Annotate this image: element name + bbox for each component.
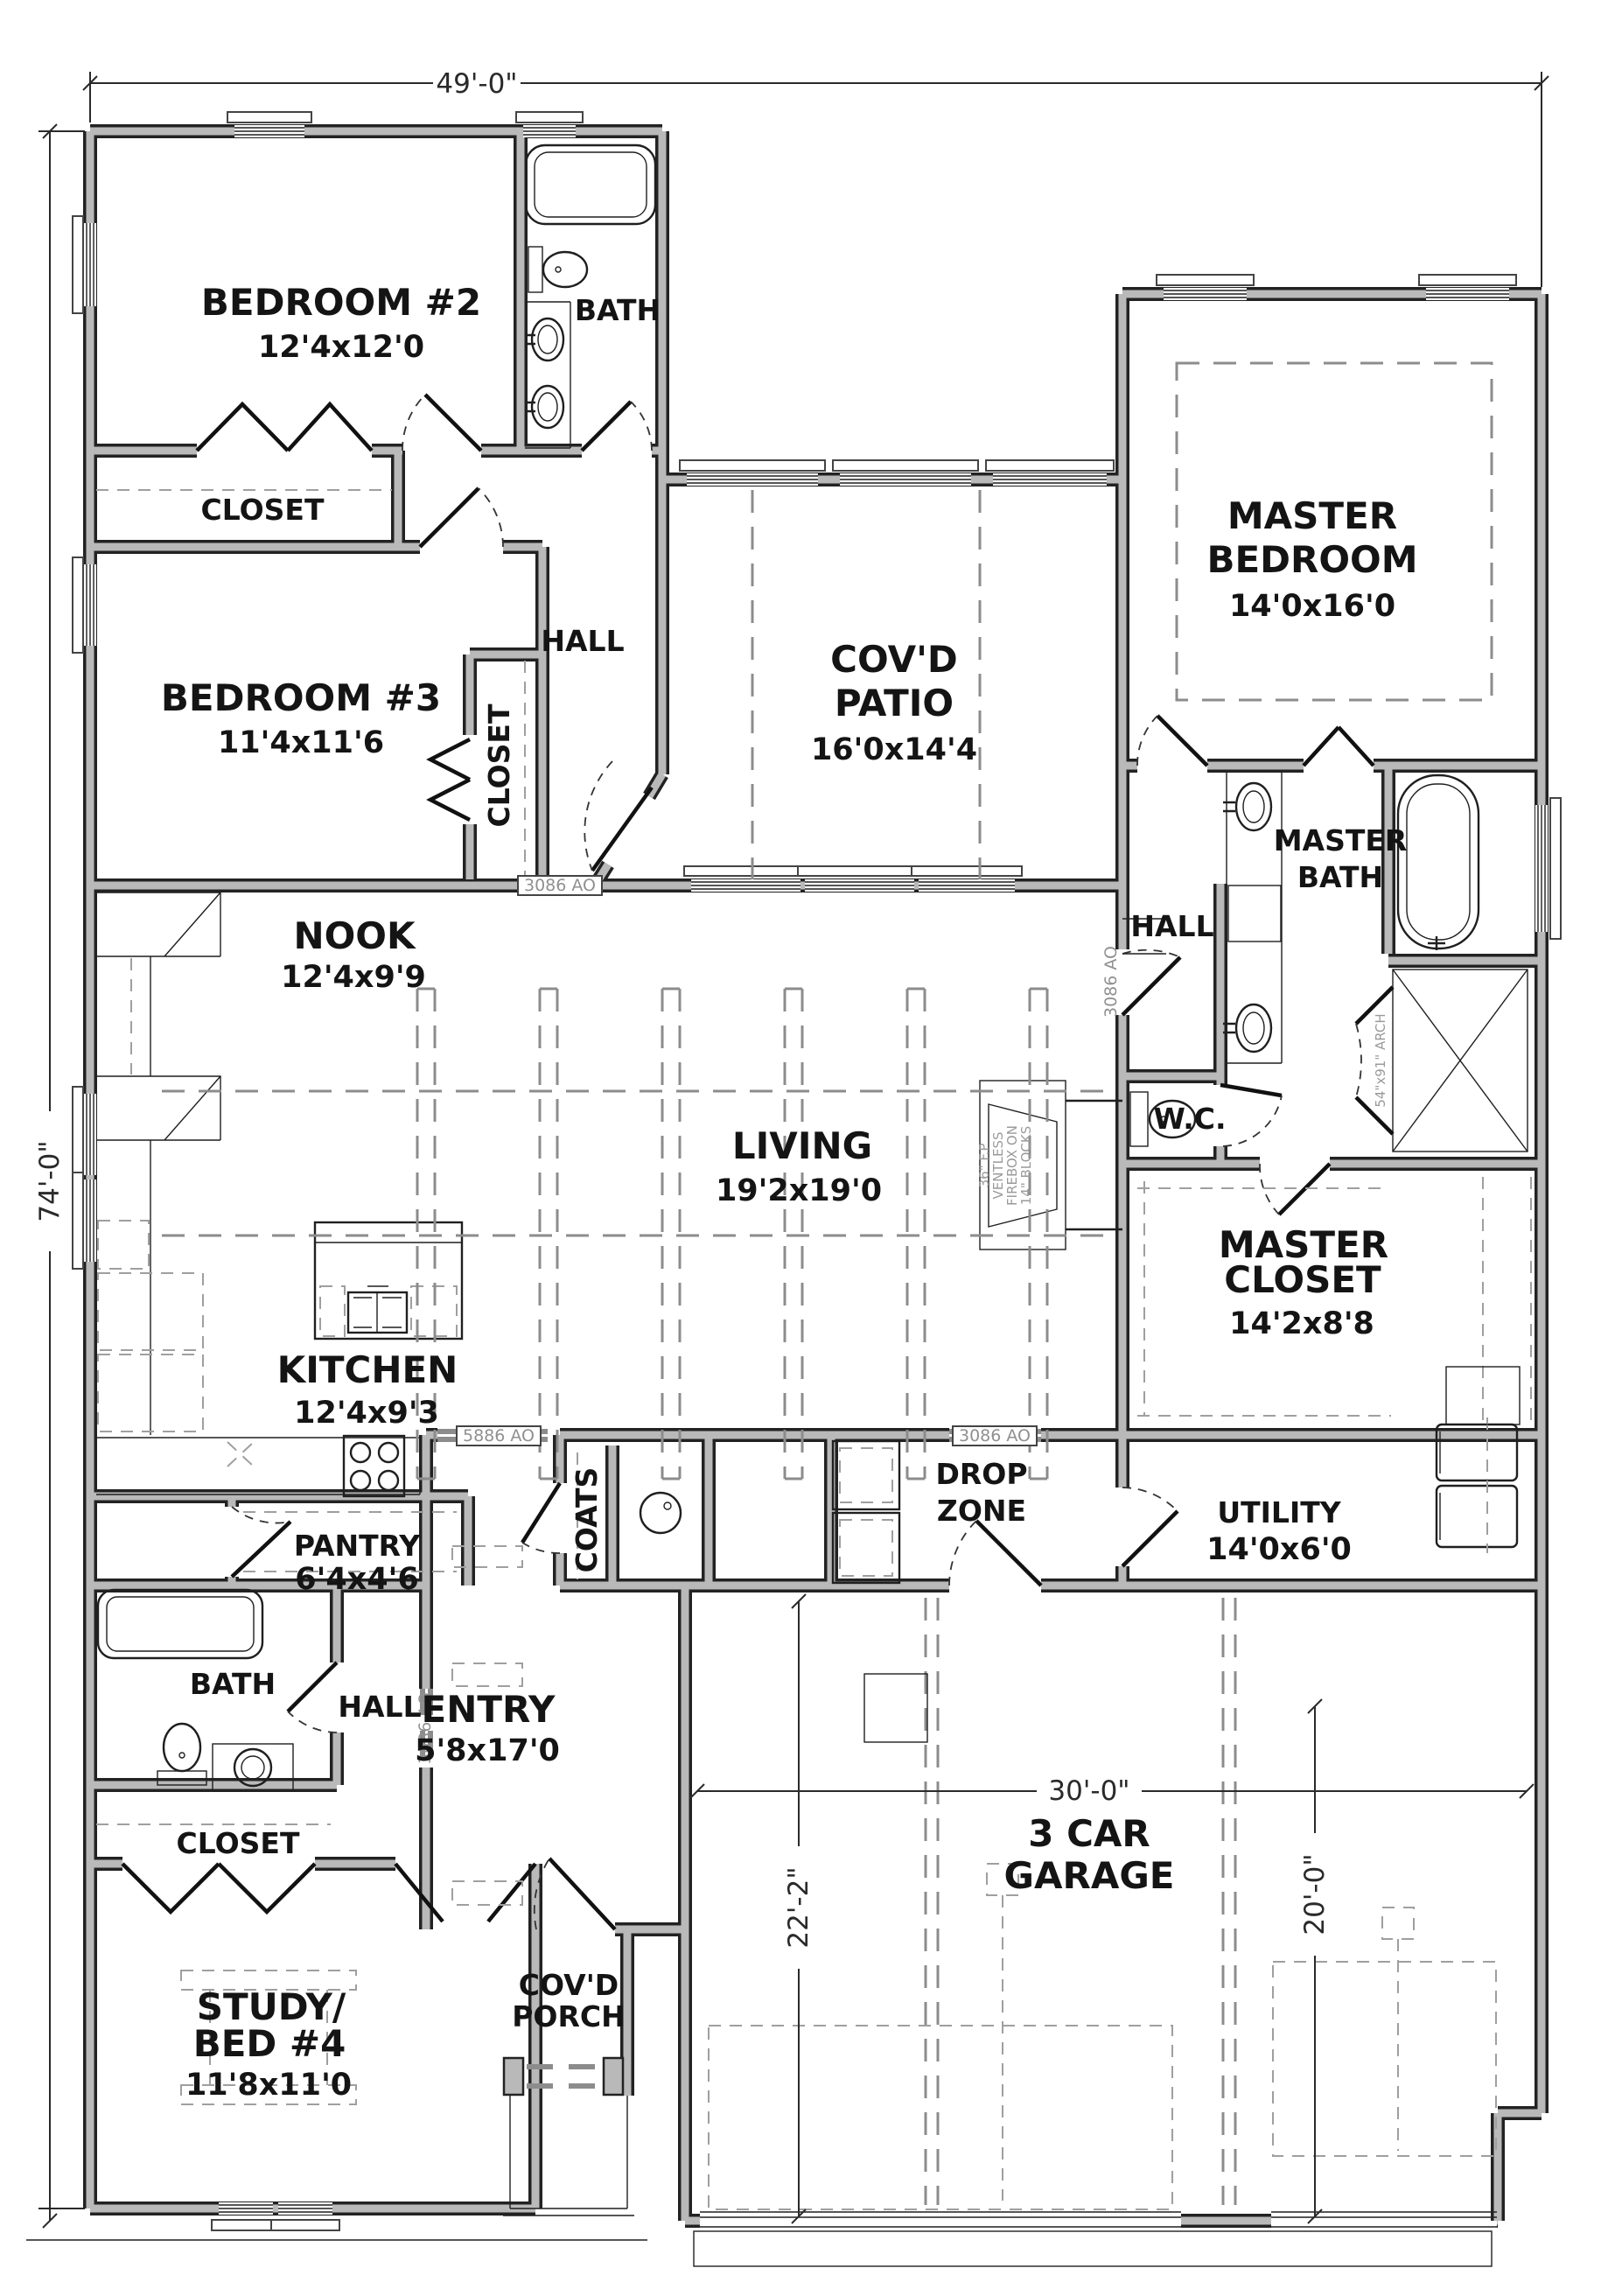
dim-garage-left-depth: 22'-2" bbox=[783, 1866, 814, 1948]
dim-overall-depth: 74'-0" bbox=[34, 1140, 66, 1221]
windows bbox=[73, 112, 1561, 2230]
label-bath-top: BATH bbox=[575, 293, 661, 327]
label-drop-1: DROP bbox=[935, 1457, 1027, 1491]
label-patio-2: PATIO bbox=[835, 682, 954, 724]
label-porch-1: COV'D bbox=[519, 1968, 619, 2002]
locker-1 bbox=[833, 1441, 899, 1509]
tag-hall-patio: 3086 AO bbox=[524, 876, 596, 895]
master-sink-1 bbox=[1236, 783, 1271, 830]
porch-column-right bbox=[604, 2058, 623, 2095]
fireplace-note-4: 14" BLOCKS bbox=[1018, 1126, 1034, 1206]
label-garage-2: GARAGE bbox=[1004, 1854, 1175, 1897]
bifold-closet-bed3 bbox=[430, 739, 470, 820]
label-closet-bed2: CLOSET bbox=[201, 493, 325, 527]
label-bath2: BATH bbox=[190, 1667, 276, 1701]
locker-2 bbox=[833, 1513, 899, 1583]
room-labels: BEDROOM #2 12'4x12'0 BATH CLOSET BEDROOM… bbox=[161, 281, 1418, 2103]
size-patio: 16'0x14'4 bbox=[811, 732, 977, 767]
size-utility: 14'0x6'0 bbox=[1206, 1532, 1352, 1567]
label-master-bedroom-1: MASTER bbox=[1227, 494, 1397, 537]
label-study-2: BED #4 bbox=[193, 2022, 346, 2065]
tag-kitchen-entry: 5886 AO bbox=[463, 1426, 535, 1445]
size-pantry: 6'4x4'6 bbox=[295, 1562, 418, 1597]
label-entry: ENTRY bbox=[422, 1688, 556, 1731]
label-wc: W.C. bbox=[1154, 1102, 1227, 1136]
label-closet-study: CLOSET bbox=[177, 1826, 300, 1860]
label-master-closet-2: CLOSET bbox=[1224, 1258, 1381, 1301]
water-heater bbox=[640, 1493, 681, 1533]
label-kitchen: KITCHEN bbox=[277, 1348, 458, 1391]
label-garage-1: 3 CAR bbox=[1028, 1812, 1150, 1855]
label-patio-1: COV'D bbox=[830, 638, 958, 681]
size-study: 11'8x11'0 bbox=[185, 2068, 352, 2103]
size-kitchen: 12'4x9'3 bbox=[294, 1396, 439, 1431]
label-nook: NOOK bbox=[293, 914, 416, 957]
garage-door-outlines bbox=[709, 1962, 1496, 2209]
garage-doors bbox=[700, 2212, 1497, 2227]
garage-apron bbox=[694, 2231, 1492, 2266]
dim-garage-width: 30'-0" bbox=[1048, 1775, 1129, 1807]
opening-headers bbox=[423, 882, 1041, 1767]
label-master-bath-1: MASTER bbox=[1274, 823, 1408, 857]
kitchen-island bbox=[315, 1222, 462, 1339]
dim-overall-width: 49'-0" bbox=[436, 68, 517, 100]
label-hall-master: HALL bbox=[1130, 909, 1213, 943]
label-pantry: PANTRY bbox=[294, 1529, 421, 1563]
floor-plan: 49'-0" 74'-0" 30'-0" 22'-2" 20'-0" 3086 … bbox=[0, 0, 1601, 2296]
label-master-bath-2: BATH bbox=[1297, 860, 1383, 894]
label-closet-bed3: CLOSET bbox=[482, 703, 516, 827]
bifold-closet-study bbox=[122, 1864, 315, 1912]
dryer bbox=[1437, 1486, 1517, 1547]
label-coats: COATS bbox=[570, 1467, 604, 1573]
label-porch-2: PORCH bbox=[512, 1999, 626, 2033]
wall-tags: 3086 AO 5886 AO 3086 AO 3086 AO 3086 AO bbox=[416, 876, 1121, 1764]
double-door-study bbox=[395, 1864, 535, 1921]
label-drop-2: ZONE bbox=[937, 1494, 1026, 1528]
porch-details bbox=[503, 2058, 634, 2215]
garage-pad bbox=[864, 1674, 927, 1742]
label-bedroom3: BEDROOM #3 bbox=[161, 676, 441, 719]
shower-note: 54"x91" ARCH bbox=[1373, 1013, 1388, 1107]
size-master-bedroom: 14'0x16'0 bbox=[1229, 589, 1395, 624]
size-bedroom3: 11'4x11'6 bbox=[218, 725, 384, 760]
label-living: LIVING bbox=[732, 1124, 872, 1167]
double-door-master-bath bbox=[1304, 727, 1374, 766]
label-hall2: HALL bbox=[338, 1690, 421, 1724]
toilet-2 bbox=[164, 1724, 200, 1771]
label-bedroom2: BEDROOM #2 bbox=[201, 281, 481, 324]
vanity-top-bath bbox=[525, 302, 570, 448]
dim-garage-right-depth: 20'-0" bbox=[1299, 1853, 1331, 1935]
size-bedroom2: 12'4x12'0 bbox=[258, 330, 424, 365]
size-nook: 12'4x9'9 bbox=[281, 960, 426, 995]
sink-1 bbox=[532, 318, 563, 360]
size-living: 19'2x19'0 bbox=[716, 1173, 882, 1208]
master-vanity bbox=[1227, 772, 1282, 1063]
bathtub-2 bbox=[98, 1590, 262, 1658]
size-master-closet: 14'2x8'8 bbox=[1229, 1306, 1374, 1341]
sink-2 bbox=[532, 386, 563, 428]
tag-living-drop: 3086 AO bbox=[959, 1426, 1031, 1445]
bifold-closet-bed2 bbox=[197, 404, 372, 451]
size-entry: 5'8x17'0 bbox=[415, 1733, 560, 1768]
label-master-bedroom-2: BEDROOM bbox=[1206, 538, 1417, 581]
tag-living-hall-door: 3086 AO bbox=[1101, 946, 1121, 1018]
porch-column-left bbox=[504, 2058, 523, 2095]
bathtub-top bbox=[526, 145, 655, 224]
master-sink-2 bbox=[1236, 1004, 1271, 1052]
label-utility: UTILITY bbox=[1217, 1495, 1341, 1529]
toilet-wc-tank bbox=[1130, 1092, 1148, 1146]
toilet-top bbox=[543, 252, 587, 287]
toilet-top-tank bbox=[528, 247, 542, 292]
label-hall-top: HALL bbox=[541, 624, 624, 658]
